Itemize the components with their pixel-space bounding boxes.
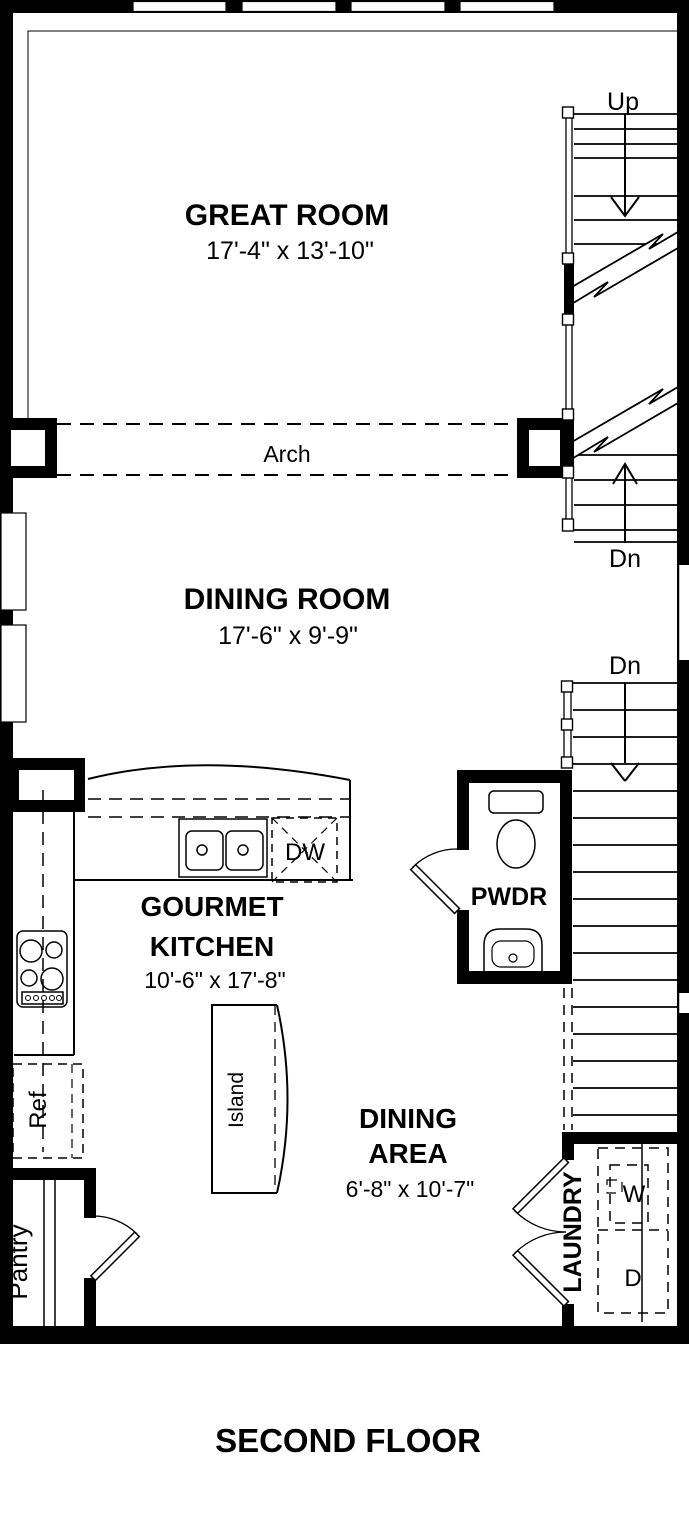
stairs-dn-upper-label: Dn bbox=[609, 545, 641, 573]
room-labels: GREAT ROOM 17'-4" x 13'-10" DINING ROOM … bbox=[140, 199, 474, 1202]
railing-post bbox=[563, 466, 574, 478]
pantry-door-leaf bbox=[91, 1232, 139, 1280]
burner bbox=[41, 968, 63, 990]
kitchen-curved-counter-wall bbox=[88, 765, 350, 780]
refrigerator-label: Ref bbox=[25, 1091, 52, 1129]
stairs-up-label: Up bbox=[607, 88, 639, 116]
kitchen-island: Island bbox=[212, 1005, 288, 1193]
arch-column-left-core bbox=[11, 430, 45, 466]
railing-solid-1 bbox=[564, 264, 574, 314]
laundry: W D LAUNDRY bbox=[513, 1132, 689, 1328]
railing-post bbox=[563, 253, 574, 264]
stair-break-line-2 bbox=[565, 387, 678, 463]
railing-post bbox=[563, 519, 574, 531]
arch-label: Arch bbox=[263, 441, 310, 467]
refrigerator: Ref bbox=[13, 1064, 83, 1158]
toilet-tank bbox=[489, 791, 543, 813]
toilet-bowl bbox=[497, 820, 535, 868]
dishwasher: DW bbox=[272, 818, 337, 882]
sink-faucet bbox=[509, 954, 517, 962]
dining-room-name: DINING ROOM bbox=[184, 583, 391, 616]
stairs-upper: Up Dn bbox=[563, 88, 679, 573]
pantry-shelf-lines bbox=[44, 1180, 55, 1326]
laundry-label: LAUNDRY bbox=[559, 1171, 587, 1293]
laundry-door-jamb-top bbox=[562, 1132, 574, 1160]
arch-opening: Arch bbox=[0, 418, 572, 478]
island-outline bbox=[212, 1005, 288, 1193]
knob bbox=[26, 996, 31, 1001]
powder-walls bbox=[457, 770, 572, 984]
cooktop-knobs bbox=[26, 996, 62, 1001]
floor-plan-title: SECOND FLOOR bbox=[215, 1422, 481, 1459]
arch-column-right-core bbox=[529, 430, 560, 466]
powder-wall-right bbox=[560, 770, 572, 984]
burner bbox=[20, 940, 42, 962]
railing-post bbox=[563, 107, 574, 118]
pantry: Pantry bbox=[0, 1168, 139, 1326]
stairs-upper-up-arrow bbox=[613, 464, 637, 543]
dining-area-name-line2: AREA bbox=[368, 1138, 447, 1169]
powder-wall-left-upper bbox=[457, 770, 469, 850]
knob bbox=[50, 996, 55, 1001]
dining-area-dims: 6'-8" x 10'-7" bbox=[346, 1176, 475, 1202]
door-leaf bbox=[411, 865, 460, 914]
floor-plan-svg: Arch Up Dn bbox=[0, 0, 689, 1536]
kitchen-name-line1: GOURMET bbox=[140, 891, 283, 922]
sink-drain-left bbox=[197, 845, 207, 855]
floor-plan-page: Arch Up Dn bbox=[0, 0, 689, 1536]
railing-post bbox=[563, 409, 574, 420]
wall-top bbox=[0, 0, 689, 13]
island-label: Island bbox=[225, 1072, 248, 1128]
kitchen-dims: 10'-6" x 17'-8" bbox=[144, 967, 285, 993]
washer-label: W bbox=[623, 1181, 646, 1208]
kitchen-upper-cabinet-dashed bbox=[88, 799, 350, 817]
railing-post bbox=[563, 314, 574, 325]
railing-dashed-guard bbox=[564, 988, 572, 1130]
sink-basin-right bbox=[226, 831, 263, 870]
window-top-2 bbox=[242, 2, 336, 12]
pantry-wall-top bbox=[0, 1168, 96, 1180]
knob bbox=[57, 996, 62, 1001]
powder-wall-bottom bbox=[457, 971, 572, 984]
railing-solid-2 bbox=[564, 420, 574, 467]
kitchen-corner-column-core bbox=[19, 770, 74, 800]
right-wall-opening-1 bbox=[678, 565, 689, 660]
window-top-3 bbox=[351, 2, 445, 12]
pantry-label: Pantry bbox=[3, 1224, 33, 1299]
right-wall-opening-2 bbox=[678, 993, 689, 1013]
stairs-upper-railing bbox=[563, 107, 575, 531]
stairs-dn-lower-label: Dn bbox=[609, 652, 641, 680]
kitchen-name-line2: KITCHEN bbox=[150, 931, 274, 962]
powder-wall-top bbox=[457, 770, 572, 783]
powder-door-leaf bbox=[411, 865, 460, 914]
stairs-lower-down-arrow bbox=[611, 683, 639, 781]
window-left-2 bbox=[1, 625, 26, 722]
window-top-4 bbox=[460, 2, 554, 12]
kitchen-sink bbox=[179, 819, 267, 877]
laundry-door-jamb-bottom bbox=[562, 1304, 574, 1328]
railing-post bbox=[562, 681, 573, 692]
sink-drain-right bbox=[238, 845, 248, 855]
dining-area-name-line1: DINING bbox=[359, 1103, 457, 1134]
toilet bbox=[489, 791, 543, 868]
dining-room-dims: 17'-6" x 9'-9" bbox=[218, 622, 358, 650]
great-room-name: GREAT ROOM bbox=[185, 199, 389, 232]
railing-post bbox=[562, 757, 573, 768]
window-left-1 bbox=[1, 513, 26, 610]
burner bbox=[21, 970, 37, 986]
laundry-wall-top bbox=[563, 1132, 689, 1144]
stairs-lower: Dn bbox=[562, 652, 678, 1130]
powder-room: PWDR bbox=[411, 770, 572, 984]
cooktop bbox=[17, 931, 67, 1007]
door-leaf bbox=[91, 1232, 139, 1280]
wall-bottom bbox=[0, 1326, 689, 1344]
dryer-label: D bbox=[624, 1265, 641, 1292]
pantry-door-swing-arc bbox=[93, 1216, 137, 1234]
knob bbox=[34, 996, 39, 1001]
powder-door-swing-arc bbox=[413, 849, 457, 867]
sink-basin-left bbox=[186, 831, 223, 870]
railing-post bbox=[562, 719, 573, 730]
great-room-dims: 17'-4" x 13'-10" bbox=[206, 237, 374, 265]
powder-room-label: PWDR bbox=[471, 883, 547, 911]
window-top-1 bbox=[133, 2, 226, 12]
pantry-wall-right-upper bbox=[84, 1168, 96, 1218]
burner bbox=[46, 942, 62, 958]
dishwasher-label: DW bbox=[285, 839, 325, 866]
knob bbox=[42, 996, 47, 1001]
pantry-wall-right-lower bbox=[84, 1278, 96, 1326]
